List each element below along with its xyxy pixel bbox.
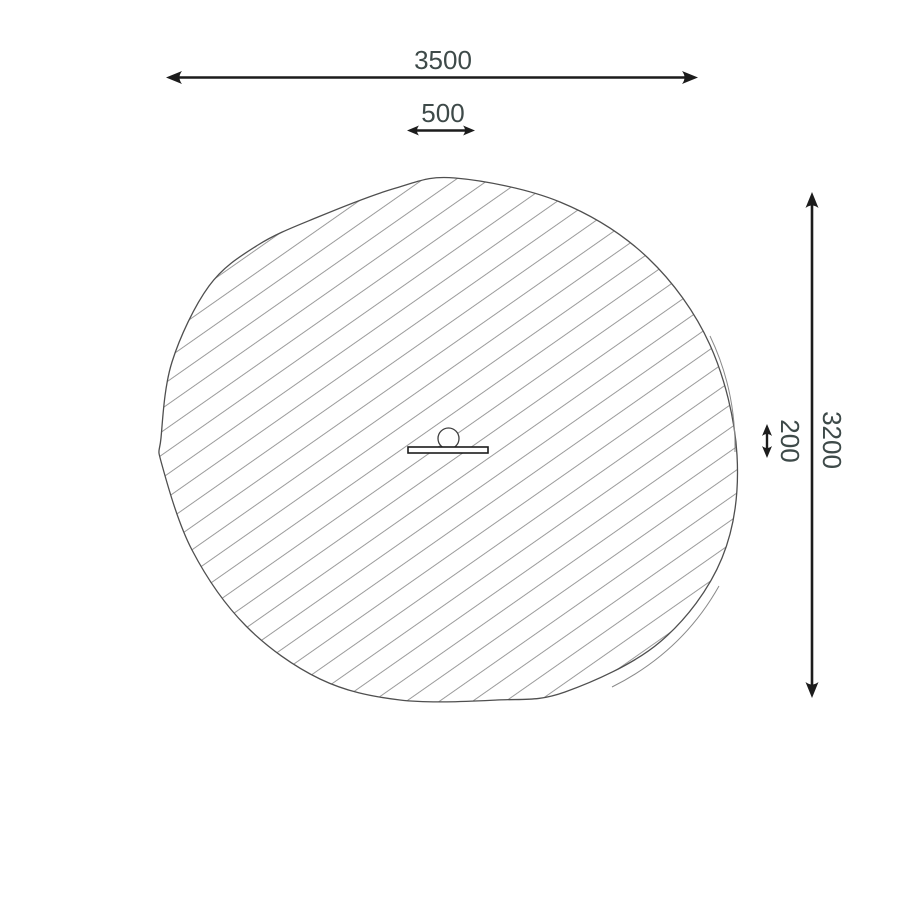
dimension-label-overall-width: 3500 <box>414 45 472 75</box>
dimension-drawing: 3500 500 3200 200 <box>0 0 900 900</box>
height-dimension-3200: 3200 <box>806 192 848 698</box>
width-dimension-3500: 3500 <box>166 45 698 84</box>
dimension-label-equipment-depth: 200 <box>775 419 805 462</box>
drawing-canvas: 3500 500 3200 200 <box>0 0 900 900</box>
equipment-bar-icon <box>408 447 488 453</box>
dimension-label-overall-height: 3200 <box>817 411 847 469</box>
dimension-label-equipment-width: 500 <box>421 98 464 128</box>
width-dimension-500: 500 <box>407 98 475 136</box>
equipment-knob-circle-icon <box>438 428 459 449</box>
depth-dimension-200: 200 <box>762 419 805 462</box>
